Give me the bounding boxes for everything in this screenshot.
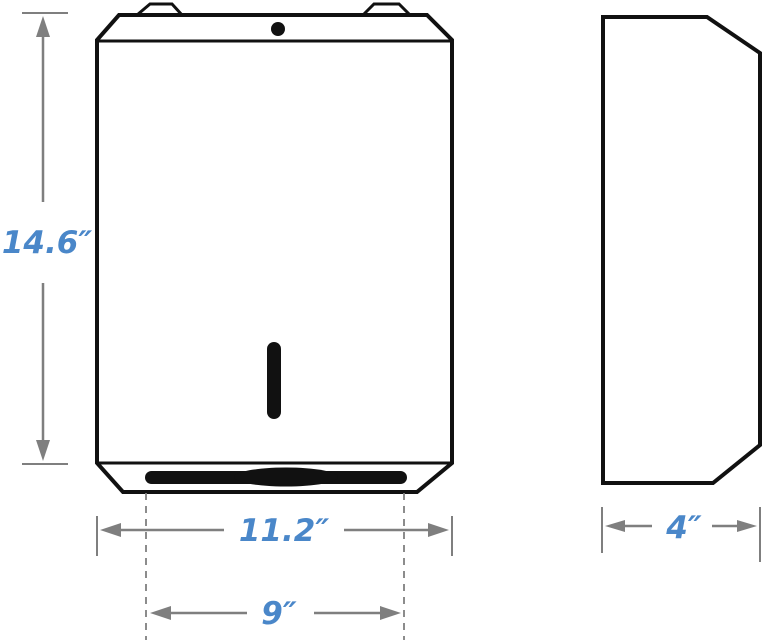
width-dimension-label: 11.2″	[239, 513, 329, 549]
width-arrow-left-icon	[100, 523, 121, 537]
depth-dimension: 4″	[602, 507, 760, 562]
width-dimension: 11.2″	[97, 513, 452, 556]
height-arrow-up-icon	[36, 16, 50, 37]
depth-arrow-right-icon	[737, 520, 757, 532]
slot-width-dimension-label: 9″	[261, 596, 297, 632]
front-view-outline	[97, 15, 452, 492]
height-dimension-label: 14.6″	[2, 225, 92, 261]
slot-width-arrow-right-icon	[380, 606, 401, 620]
height-arrow-down-icon	[36, 440, 50, 461]
side-view	[603, 17, 760, 483]
depth-dimension-label: 4″	[665, 510, 702, 546]
dispenser-drawing-svg: 14.6″ 11.2″ 9″	[0, 0, 763, 640]
width-arrow-right-icon	[428, 523, 449, 537]
slot-width-arrow-left-icon	[150, 606, 171, 620]
depth-arrow-left-icon	[605, 520, 625, 532]
lock-hole	[271, 22, 285, 36]
level-window-slot	[267, 342, 281, 419]
height-dimension: 14.6″	[2, 13, 92, 464]
towel-dispense-slot	[145, 468, 407, 487]
side-view-outline	[603, 17, 760, 483]
technical-drawing-canvas: 14.6″ 11.2″ 9″	[0, 0, 763, 640]
front-view	[97, 4, 452, 492]
